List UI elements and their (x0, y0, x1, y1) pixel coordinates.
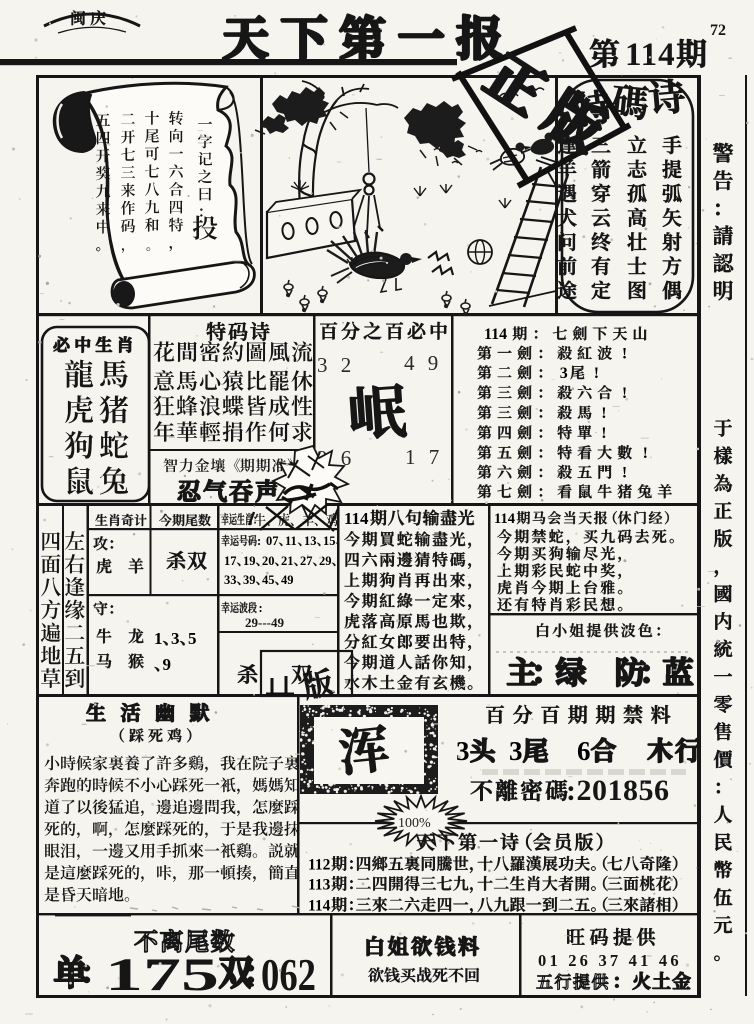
svg-text:07: 07 (266, 534, 279, 548)
svg-text:9: 9 (163, 655, 172, 674)
svg-text:15: 15 (323, 534, 336, 548)
svg-text:39: 39 (243, 573, 256, 587)
svg-text:01 26 37 41 46: 01 26 37 41 46 (538, 951, 682, 970)
svg-text:29---49: 29---49 (245, 615, 284, 630)
svg-text:!: ! (643, 445, 648, 462)
svg-text:29: 29 (319, 554, 332, 568)
svg-text:!: ! (601, 405, 606, 422)
svg-text:19: 19 (243, 554, 256, 568)
svg-text:112: 112 (308, 857, 331, 874)
svg-text:20: 20 (262, 554, 275, 568)
svg-text:45: 45 (262, 573, 275, 587)
svg-text:!: ! (594, 365, 599, 382)
svg-text:3: 3 (560, 365, 568, 382)
svg-text:175: 175 (105, 949, 219, 1001)
svg-text:114: 114 (494, 511, 515, 527)
svg-text::: : (259, 601, 263, 615)
svg-text:4 9: 4 9 (404, 351, 442, 375)
svg-text:3 2: 3 2 (317, 353, 355, 377)
svg-text:!: ! (622, 465, 627, 482)
svg-text:13: 13 (304, 534, 317, 548)
svg-text:3: 3 (456, 736, 470, 766)
svg-text:114: 114 (625, 37, 676, 73)
svg-text:114: 114 (344, 509, 369, 528)
svg-text:21: 21 (281, 554, 294, 568)
svg-text:3: 3 (171, 629, 180, 648)
svg-text:1: 1 (154, 629, 163, 648)
svg-text:5: 5 (188, 629, 197, 648)
svg-text:114: 114 (484, 326, 507, 343)
svg-text:113: 113 (308, 877, 331, 894)
svg-text:3: 3 (509, 736, 523, 766)
svg-text:!: ! (601, 425, 606, 442)
svg-text:6: 6 (577, 736, 591, 766)
svg-text::: : (257, 534, 261, 548)
svg-text:27: 27 (300, 554, 313, 568)
svg-text::201856: :201856 (566, 774, 670, 807)
svg-text:49: 49 (281, 573, 294, 587)
svg-text:1 7: 1 7 (405, 445, 443, 469)
svg-text:062: 062 (261, 949, 316, 1000)
svg-text:33: 33 (224, 573, 237, 587)
svg-text:11: 11 (285, 534, 297, 548)
svg-text:!: ! (622, 346, 627, 363)
svg-text:72: 72 (710, 22, 726, 39)
svg-text:17: 17 (224, 554, 237, 568)
svg-text:100%: 100% (398, 816, 431, 831)
svg-text:114: 114 (308, 898, 331, 915)
